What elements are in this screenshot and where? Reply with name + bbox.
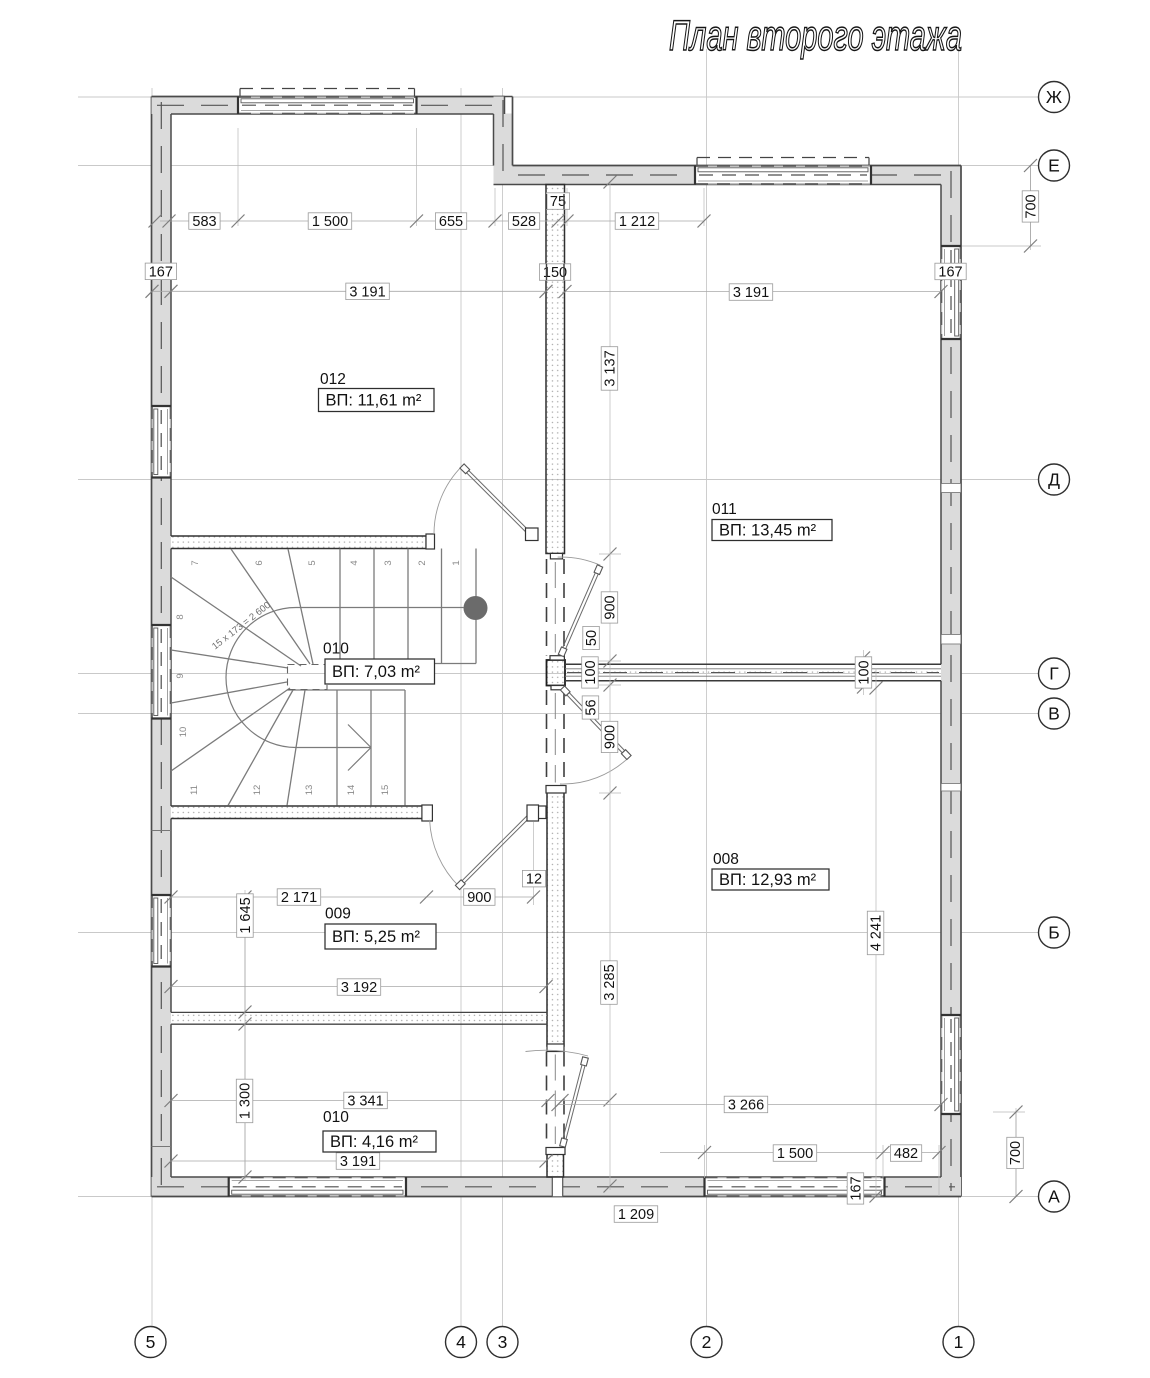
svg-text:5: 5	[307, 560, 318, 565]
svg-text:ВП: 13,45 m²: ВП: 13,45 m²	[719, 522, 817, 540]
svg-text:ВП: 11,61 m²: ВП: 11,61 m²	[326, 392, 422, 410]
svg-text:100: 100	[583, 660, 599, 684]
svg-text:700: 700	[1008, 1141, 1024, 1165]
svg-text:900: 900	[603, 595, 619, 619]
svg-text:167: 167	[149, 264, 173, 280]
svg-text:3 192: 3 192	[341, 980, 377, 996]
svg-text:В: В	[1048, 704, 1060, 724]
svg-text:3 191: 3 191	[733, 285, 769, 301]
svg-text:2: 2	[417, 560, 428, 565]
svg-text:3 341: 3 341	[347, 1094, 383, 1110]
svg-text:5: 5	[146, 1332, 156, 1352]
svg-text:012: 012	[320, 371, 346, 388]
svg-text:3: 3	[383, 560, 394, 565]
svg-text:010: 010	[323, 641, 349, 658]
svg-text:4 241: 4 241	[869, 915, 885, 951]
svg-text:Д: Д	[1048, 470, 1060, 490]
svg-text:2 171: 2 171	[281, 890, 317, 906]
svg-text:1: 1	[954, 1332, 964, 1352]
svg-text:1: 1	[451, 560, 462, 565]
svg-text:ВП: 4,16 m²: ВП: 4,16 m²	[330, 1133, 418, 1151]
svg-text:9: 9	[175, 673, 186, 678]
svg-text:167: 167	[849, 1176, 865, 1200]
svg-text:10: 10	[178, 727, 189, 738]
svg-text:А: А	[1048, 1187, 1060, 1207]
svg-text:7: 7	[190, 560, 201, 565]
svg-text:655: 655	[439, 214, 463, 230]
svg-text:2: 2	[702, 1332, 712, 1352]
svg-text:3 191: 3 191	[349, 284, 385, 300]
svg-text:Г: Г	[1049, 664, 1059, 684]
svg-text:1 209: 1 209	[618, 1207, 654, 1223]
svg-text:100: 100	[857, 660, 873, 684]
svg-text:4: 4	[456, 1332, 466, 1352]
svg-text:583: 583	[192, 214, 216, 230]
svg-text:900: 900	[603, 725, 619, 749]
svg-text:12: 12	[252, 785, 263, 796]
svg-text:11: 11	[189, 785, 200, 795]
svg-text:6: 6	[254, 560, 265, 565]
svg-text:Ж: Ж	[1046, 87, 1062, 107]
svg-text:12: 12	[526, 872, 542, 888]
svg-text:13: 13	[304, 785, 315, 796]
svg-text:167: 167	[938, 265, 962, 281]
svg-text:15: 15	[380, 785, 391, 796]
svg-text:482: 482	[894, 1146, 918, 1162]
svg-text:900: 900	[467, 890, 491, 906]
svg-text:3 137: 3 137	[603, 350, 619, 386]
svg-text:Б: Б	[1048, 923, 1059, 943]
svg-text:528: 528	[512, 214, 536, 230]
svg-text:010: 010	[323, 1109, 349, 1126]
svg-text:700: 700	[1024, 194, 1040, 218]
svg-text:3 191: 3 191	[340, 1154, 376, 1170]
svg-text:50: 50	[584, 630, 600, 646]
svg-text:1 212: 1 212	[619, 214, 655, 230]
svg-text:56: 56	[584, 699, 600, 715]
svg-text:3: 3	[498, 1332, 508, 1352]
svg-text:8: 8	[175, 614, 186, 619]
svg-text:4: 4	[349, 560, 360, 565]
svg-text:Е: Е	[1048, 156, 1060, 176]
svg-text:3 266: 3 266	[728, 1098, 764, 1114]
svg-text:ВП: 12,93 m²: ВП: 12,93 m²	[719, 871, 817, 889]
svg-text:1 500: 1 500	[777, 1146, 813, 1162]
svg-text:ВП: 7,03 m²: ВП: 7,03 m²	[332, 663, 420, 681]
svg-text:1 645: 1 645	[238, 897, 254, 933]
svg-text:011: 011	[712, 501, 737, 518]
svg-text:1 500: 1 500	[312, 214, 348, 230]
svg-text:План второго этажа: План второго этажа	[669, 12, 962, 60]
svg-text:009: 009	[325, 906, 351, 923]
svg-text:008: 008	[713, 851, 739, 868]
svg-text:14: 14	[346, 785, 357, 796]
svg-text:3 285: 3 285	[602, 964, 618, 1000]
svg-text:1 300: 1 300	[238, 1083, 254, 1119]
svg-text:ВП: 5,25 m²: ВП: 5,25 m²	[332, 928, 420, 946]
